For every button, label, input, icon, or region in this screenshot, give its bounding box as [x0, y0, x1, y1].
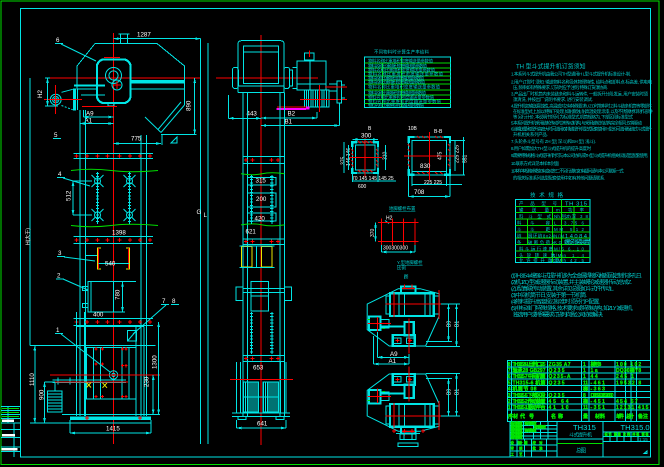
- svg-text:名 称: 名 称: [551, 413, 563, 420]
- svg-text:物料名称比重堆积密度输送量参数值: 物料名称比重堆积密度输送量参数值: [368, 102, 425, 109]
- svg-text:6: 6: [56, 37, 60, 44]
- svg-text:比例: 比例: [397, 265, 406, 272]
- svg-text:KG: KG: [554, 240, 563, 245]
- svg-text:(2)机JZQ 型减速器传动装置, 并主装蜗轮减速器 传动总: (2)机JZQ 型减速器传动装置, 并主装蜗轮减速器 传动总成Z.: [511, 278, 632, 286]
- svg-text:8: 8: [583, 393, 586, 399]
- svg-text:TH315-6 机筒: TH315-6 机筒: [513, 379, 546, 386]
- svg-text:400: 400: [93, 312, 104, 319]
- svg-text:条: 条: [517, 239, 522, 245]
- svg-text:230: 230: [144, 376, 151, 387]
- svg-text:TH315-2 传动装置: TH315-2 传动装置: [513, 398, 546, 405]
- svg-text:6: 6: [508, 374, 511, 380]
- svg-text:单件: 单件: [616, 413, 624, 420]
- svg-text:2: 2: [57, 273, 61, 280]
- svg-text:100 102: 100 102: [616, 362, 641, 368]
- svg-text:TH 315: TH 315: [565, 201, 587, 207]
- svg-text:B9: B9: [447, 321, 453, 327]
- svg-text:5: 5: [54, 132, 58, 139]
- svg-text:44: 44: [591, 374, 598, 380]
- svg-text:Nh.列: Nh.列: [554, 213, 567, 220]
- svg-text:10B: 10B: [408, 126, 418, 132]
- svg-text:3.75 6: 3.75 6: [564, 221, 585, 226]
- svg-text:TH315: TH315: [573, 423, 596, 432]
- svg-text:1300: 1300: [152, 355, 159, 369]
- svg-text:370: 370: [370, 228, 376, 237]
- svg-text:工 艺: 工 艺: [511, 451, 524, 456]
- svg-text:1398: 1398: [112, 230, 126, 237]
- svg-text:代 号: 代 号: [519, 413, 534, 420]
- svg-text:TH315.8-1 出料口25: TH315.8-1 出料口25: [513, 361, 546, 368]
- svg-text:Zh 深: Zh 深: [566, 213, 577, 220]
- svg-text:不同物料时计算生产率给料: 不同物料时计算生产率给料: [374, 49, 429, 56]
- svg-text:8.用户如需加大TH 型斗式提升机的提升高度时: 8.用户如需加大TH 型斗式提升机的提升高度时: [511, 145, 592, 152]
- svg-text:技 术 规 格: 技 术 规 格: [530, 191, 564, 199]
- svg-text:斗: 斗: [517, 227, 522, 232]
- svg-text:H2: H2: [386, 216, 393, 222]
- svg-text:H2: H2: [37, 90, 44, 98]
- svg-text:TH315-5 下部区段: TH315-5 下部区段: [513, 392, 546, 399]
- svg-text:(3)中间机筒节日,安装于第一节机筒.: (3)中间机筒节日,安装于第一节机筒.: [511, 291, 587, 299]
- svg-text:TH315.0: TH315.0: [621, 423, 650, 432]
- svg-text:料斗运行速度: 料斗运行速度: [519, 245, 554, 252]
- svg-text:300: 300: [361, 133, 372, 140]
- svg-text:1.本系列斗式提升机由我公司TH型通用H L型斗式提升机标准: 1.本系列斗式提升机由我公司TH型通用H L型斗式提升机标准设计-制.: [511, 71, 631, 78]
- svg-text:螺旋张紧装置: 螺旋张紧装置: [564, 238, 590, 246]
- svg-text:B9: B9: [447, 389, 453, 395]
- svg-text:40/M/h: 40/M/h: [550, 258, 567, 263]
- svg-text:H(大于): H(大于): [25, 228, 32, 245]
- svg-text:1: 1: [583, 374, 586, 380]
- svg-text:M/S: M/S: [554, 246, 564, 251]
- svg-text:G: G: [197, 209, 202, 216]
- svg-text:512: 512: [66, 190, 73, 201]
- svg-text:总图: 总图: [576, 447, 586, 455]
- svg-text:标记处数更改: 标记处数更改: [510, 435, 524, 440]
- svg-text:独选用户或特殊要求订货时向我公司 协商解决.: 独选用户或特殊要求订货时向我公司 协商解决.: [513, 311, 603, 319]
- svg-text:-351: -351: [591, 405, 606, 411]
- svg-text:12131 415: 12131 415: [616, 405, 649, 411]
- svg-text:200: 200: [256, 196, 267, 203]
- svg-text:B2: B2: [288, 111, 296, 118]
- svg-text:序 材: 序 材: [507, 413, 518, 420]
- svg-text:升机相关系列产品.: 升机相关系列产品.: [513, 131, 548, 138]
- svg-text:标记处数更改: 标记处数更改: [524, 428, 538, 433]
- svg-text:775: 775: [131, 136, 142, 143]
- svg-text:功 率: 功 率: [568, 207, 585, 214]
- svg-text:地脚螺栓布置: 地脚螺栓布置: [389, 205, 416, 212]
- svg-text:审 核: 审 核: [511, 446, 524, 451]
- svg-text:斗 容: 斗 容: [530, 220, 551, 227]
- svg-text:B1: B1: [455, 389, 461, 395]
- svg-text:8: 8: [508, 362, 511, 368]
- svg-text:Q235-A: Q235-A: [549, 374, 571, 380]
- svg-text:的相关标准系列选型配套使用中如有其他问题请联系.: 的相关标准系列选型配套使用中如有其他问题请联系.: [513, 175, 605, 182]
- svg-text:(Z)J型直联传动装置, 其余详见总图如斗式件传动L.: (Z)J型直联传动装置, 其余详见总图如斗式件传动L.: [511, 285, 614, 293]
- svg-text:4: 4: [508, 387, 511, 393]
- svg-text:7: 7: [508, 368, 511, 374]
- svg-text:TH 型斗式提升机订货须知: TH 型斗式提升机订货须知: [516, 63, 586, 71]
- svg-text:梯形8: 梯形8: [591, 361, 602, 368]
- svg-text:Ⅰ: Ⅰ: [404, 275, 405, 280]
- svg-text:1287: 1287: [137, 32, 151, 39]
- svg-text:475: 475: [438, 151, 444, 160]
- svg-text:斗式提升机: 斗式提升机: [569, 432, 592, 439]
- svg-text:1: 1: [583, 362, 586, 368]
- svg-text:245 1: 245 1: [616, 374, 634, 380]
- svg-text:1: 1: [583, 368, 586, 374]
- svg-text:B-B: B-B: [434, 129, 443, 135]
- svg-text:4: 4: [58, 171, 62, 178]
- svg-text:备 注: 备 注: [637, 413, 648, 420]
- svg-text:(4)物料提升高度超过标准时 须另行P 配置.: (4)物料提升高度超过标准时 须另行P 配置.: [511, 298, 600, 306]
- svg-text:N/M: N/M: [554, 234, 564, 239]
- svg-text:1: 1: [56, 327, 60, 334]
- svg-text:1415: 1415: [106, 426, 120, 433]
- svg-text:300300300: 300300300: [383, 246, 408, 252]
- svg-text:须清洗, 并按出厂说明书要求, 进行安装调试.: 须清洗, 并按出厂说明书要求, 进行安装调试.: [513, 96, 593, 103]
- svg-text:(1)TH315 4 x增强斗式提升机多为全金属焊接风格超固: (1)TH315 4 x增强斗式提升机多为全金属焊接风格超固定制作多孔日.: [511, 272, 642, 280]
- svg-text:材 料: 材 料: [595, 413, 605, 420]
- svg-text:1a: 1a: [591, 368, 598, 374]
- svg-text:L: L: [204, 212, 208, 219]
- svg-text:5: 5: [508, 380, 511, 386]
- svg-text:圆环链8x24: 圆环链8x24: [528, 232, 555, 239]
- svg-text:11: 11: [583, 405, 588, 411]
- svg-text:780: 780: [115, 289, 122, 300]
- svg-text:540: 540: [105, 261, 116, 268]
- svg-text:315: 315: [256, 178, 267, 185]
- svg-text:890: 890: [186, 100, 193, 111]
- svg-text:621: 621: [246, 229, 257, 236]
- svg-text:DQ30梯Y8: DQ30梯Y8: [616, 367, 641, 374]
- svg-text:链: 链: [517, 232, 522, 239]
- svg-text:11.本样本规格参数如有变动恕二不另行通知, 如有疑问请与本: 11.本样本规格参数如有变动恕二不另行通知, 如有疑问请与本公司联系一式.: [511, 168, 624, 175]
- svg-text:TH315-7 中间机筒: TH315-7 中间机筒: [513, 373, 546, 380]
- svg-text:7.头轮条斗型号有 ZH 型( 深斗)和SH 型( 浅斗).: 7.头轮条斗型号有 ZH 型( 深斗)和SH 型( 浅斗).: [511, 138, 596, 145]
- svg-text:600: 600: [358, 184, 367, 190]
- svg-text:225 225: 225 225: [424, 180, 442, 186]
- svg-text:梯: 梯: [583, 386, 588, 393]
- svg-text:(5)非标准门特殊规格, 技术要求或特殊结构, 如ZLY 减: (5)非标准门特殊规格, 技术要求或特殊结构, 如ZLY 减速机,: [511, 304, 633, 312]
- svg-text:-451: -451: [591, 399, 606, 405]
- svg-text:量: 量: [583, 413, 588, 420]
- svg-text:653: 653: [253, 365, 264, 372]
- svg-text:ZG35 A7: ZG35 A7: [549, 362, 571, 368]
- svg-text:10.联系方式详见本样本封面: 10.联系方式详见本样本封面: [511, 160, 560, 167]
- svg-text:9.需要特殊规格斗式提升机时可与本公司协商, 或TH型斗式提: 9.需要特殊规格斗式提升机时可与本公司协商, 或TH型斗式提升机相关标准选型配套…: [511, 152, 648, 159]
- svg-text:11: 11: [583, 380, 588, 386]
- svg-text:2: 2: [508, 399, 511, 405]
- svg-text:DZ85-5 315 16 50: DZ85-5 315 16 50: [591, 393, 614, 399]
- svg-text:420: 420: [255, 216, 266, 223]
- svg-text:708: 708: [414, 189, 425, 196]
- svg-text:512: 512: [570, 227, 585, 232]
- svg-text:梯: 梯: [583, 398, 588, 405]
- svg-text:641: 641: [257, 421, 268, 428]
- svg-text:MM: MM: [554, 227, 563, 232]
- svg-text:斗 距: 斗 距: [530, 227, 551, 232]
- svg-text:3: 3: [508, 393, 511, 399]
- svg-text:1:15: 1:15: [639, 437, 648, 442]
- svg-text:轴承28 GB297: 轴承28 GB297: [513, 367, 546, 374]
- svg-text:3: 3: [58, 250, 62, 257]
- svg-text:料: 料: [517, 220, 522, 227]
- svg-text:19532 8: 19532 8: [616, 380, 641, 386]
- svg-text:B1: B1: [455, 321, 461, 327]
- svg-text:1: 1: [508, 405, 511, 411]
- svg-text:8: 8: [172, 298, 176, 305]
- svg-text:B1: B1: [285, 119, 293, 126]
- svg-text:m: m: [556, 208, 560, 213]
- svg-text:压, 频率如有特殊要求, 订货时应予注明, 特殊订货须协商.: 压, 频率如有特殊要求, 订货时应予注明, 特殊订货须协商.: [513, 84, 608, 91]
- svg-text:等 另行计价, 本说明书所列 为标准型式,机筒规格为, 下部: 等 另行计价, 本说明书所列 为标准型式,机筒规格为, 下部区段标准型式: [513, 114, 634, 121]
- svg-text:7: 7: [162, 298, 166, 305]
- svg-text:TH315-1 驱动平台: TH315-1 驱动平台: [513, 404, 546, 411]
- svg-text:标记 重量 比例 共张 第张: 标记 重量 比例 共张 第张: [604, 431, 650, 436]
- svg-text:总计: 总计: [626, 413, 634, 420]
- svg-text:443: 443: [247, 111, 258, 118]
- svg-text:机筒节 08: 机筒节 08: [512, 386, 537, 393]
- svg-text:5.本系列提升机采用链轮传动时,其传动机构, 与采用链轮的结: 5.本系列提升机采用链轮传动时,其传动机构, 与采用链轮的结构完全相同, 仅将驱…: [511, 120, 643, 127]
- svg-text:-461: -461: [591, 380, 606, 386]
- svg-text:830: 830: [420, 163, 431, 170]
- svg-text:-363: -363: [591, 387, 606, 393]
